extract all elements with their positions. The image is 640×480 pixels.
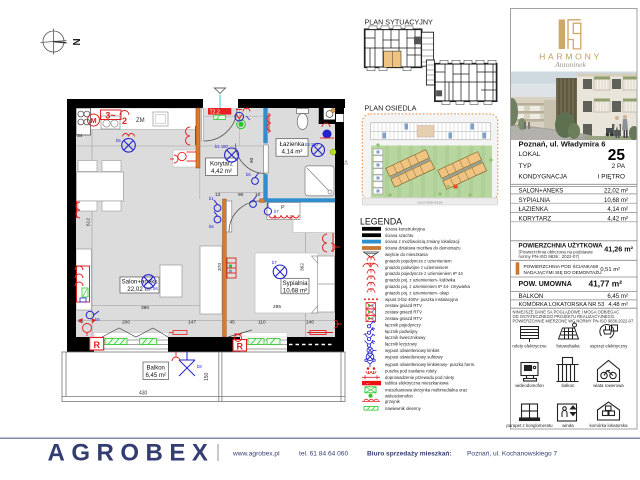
svg-text:10,68 m²: 10,68 m² (283, 287, 307, 294)
svg-text:140: 140 (306, 320, 314, 326)
svg-text:6,45 m²: 6,45 m² (607, 293, 628, 300)
svg-text:22,02 m²: 22,02 m² (127, 286, 151, 293)
svg-text:LEGENDA: LEGENDA (360, 217, 402, 227)
svg-text:90: 90 (238, 192, 244, 198)
svg-text:147: 147 (188, 320, 196, 326)
svg-text:R: R (236, 342, 243, 352)
svg-text:ściana działowa możliwa do dem: ściana działowa możliwa do demontażu (385, 246, 461, 251)
svg-text:wideodomofon: wideodomofon (385, 393, 414, 398)
svg-text:34: 34 (77, 133, 83, 139)
svg-text:gniazdo pojedyncze z uziemieni: gniazdo pojedyncze z uziemieniem (385, 258, 452, 263)
svg-text:Sypialnia: Sypialnia (282, 280, 308, 287)
svg-text:45: 45 (230, 320, 236, 326)
svg-text:b7: b7 (274, 209, 279, 214)
svg-text:tel. 61 84 64 060: tel. 61 84 64 060 (299, 451, 348, 458)
svg-text:4,48 m²: 4,48 m² (608, 302, 628, 308)
svg-text:POWIERZCHNIA POD ŚCIANKAMI: POWIERZCHNIA POD ŚCIANKAMI (524, 262, 599, 269)
svg-text:gniazdo poj. z uziemieniem- ok: gniazdo poj. z uziemieniem- okap (385, 290, 449, 295)
svg-text:KONDYGNACJA: KONDYGNACJA (519, 173, 568, 180)
svg-text:LOKAL: LOKAL (519, 151, 541, 158)
svg-text:mieszkaniowa skrzynka multimed: mieszkaniowa skrzynka multimedialna oraz (385, 387, 467, 392)
svg-text:ściana z możliwością zmiany lo: ściana z możliwością zmiany lokalizacji (385, 239, 460, 244)
svg-text:2: 2 (122, 116, 127, 126)
svg-text:2 PA: 2 PA (612, 163, 626, 170)
svg-text:AGROBEX: AGROBEX (48, 440, 215, 467)
svg-text:łącznik pojedynczy: łącznik pojedynczy (385, 322, 422, 327)
svg-text:wideodomofon: wideodomofon (515, 383, 544, 388)
svg-text:balkon: balkon (562, 383, 575, 388)
svg-text:41,26 m²: 41,26 m² (604, 245, 633, 254)
svg-text:b6: b6 (95, 317, 100, 322)
svg-text:25: 25 (608, 147, 626, 164)
svg-text:b6: b6 (209, 224, 214, 229)
svg-text:4,14 m²: 4,14 m² (282, 149, 303, 156)
svg-text:370: 370 (217, 263, 223, 271)
svg-text:3~: 3~ (105, 111, 115, 121)
svg-text:KOMÓRKA LOKATORSKA NR 53: KOMÓRKA LOKATORSKA NR 53 (519, 301, 605, 308)
svg-text:13: 13 (215, 192, 221, 198)
svg-text:łącznik podwójny: łącznik podwójny (385, 329, 418, 334)
svg-text:b1: b1 (209, 196, 214, 201)
svg-text:Antoninek: Antoninek (554, 60, 586, 69)
svg-text:N: N (70, 38, 81, 45)
svg-text:doprowadzenie przewodu pod rol: doprowadzenie przewodu pod rolety (385, 375, 455, 380)
svg-text:parapet z konglomeratu: parapet z konglomeratu (506, 423, 553, 428)
svg-text:tablica elektryczna mieszkanio: tablica elektryczna mieszkaniowa (385, 381, 449, 386)
svg-text:200: 200 (122, 320, 130, 326)
svg-text:łącznik krzyżowy: łącznik krzyżowy (385, 342, 418, 347)
svg-text:430: 430 (139, 391, 148, 397)
svg-text:POWIERZCHNIA UŻYTKOWA: POWIERZCHNIA UŻYTKOWA (519, 242, 604, 249)
svg-text:puszka pod zasilanie rolety: puszka pod zasilanie rolety (385, 369, 437, 374)
svg-text:wypust oświetleniowy kinkiet: wypust oświetleniowy kinkiet (385, 348, 440, 353)
svg-text:612: 612 (86, 218, 92, 226)
svg-text:b8: b8 (197, 364, 202, 369)
svg-text:PLAN OSIEDLA: PLAN OSIEDLA (365, 104, 417, 113)
svg-text:R: R (93, 340, 100, 350)
svg-text:110: 110 (258, 320, 266, 326)
svg-text:grzejnik: grzejnik (385, 399, 401, 404)
svg-text:M: M (90, 116, 96, 125)
svg-text:b6: b6 (246, 172, 251, 177)
svg-text:b6: b6 (153, 286, 158, 291)
svg-text:0,51 m²: 0,51 m² (600, 267, 620, 273)
svg-text:wypust oświetleniowy kinkietow: wypust oświetleniowy kinkietowy- puszka … (385, 362, 476, 367)
svg-text:ULICA NOWA WILDA: ULICA NOWA WILDA (418, 200, 443, 204)
svg-text:6,45 m²: 6,45 m² (146, 373, 166, 379)
svg-text:b7: b7 (272, 260, 277, 265)
svg-text:b1 180: b1 180 (215, 144, 228, 149)
svg-text:gniazdo poj. z uziemieniem- lo: gniazdo poj. z uziemieniem- lodówka (385, 278, 456, 283)
svg-text:295: 295 (273, 304, 281, 310)
svg-text:390: 390 (141, 305, 149, 311)
svg-text:4,42 m²: 4,42 m² (211, 168, 232, 175)
svg-text:TYP: TYP (519, 163, 533, 170)
svg-text:zestaw gniazd RTV: zestaw gniazd RTV (385, 303, 422, 308)
svg-text:wejście do mieszkania: wejście do mieszkania (385, 252, 428, 257)
svg-text:POW. UMOWNA: POW. UMOWNA (519, 281, 572, 288)
svg-text:www.agrobex.pl: www.agrobex.pl (232, 451, 280, 458)
svg-text:PLAN SYTUACYJNY: PLAN SYTUACYJNY (365, 18, 434, 27)
svg-text:wiata rowerowa: wiata rowerowa (593, 383, 624, 388)
svg-text:wpust 3-faz 400V- puszka insta: wpust 3-faz 400V- puszka instalacyjna (385, 297, 458, 302)
svg-text:gniazdo poj. z uziemieniem IP: gniazdo poj. z uziemieniem IP 44- zmywar… (385, 284, 471, 289)
svg-text:BALKON: BALKON (519, 293, 544, 300)
svg-text:ZM: ZM (136, 118, 145, 124)
svg-text:łącznik świecznikowy: łącznik świecznikowy (385, 335, 426, 340)
svg-text:Łazienka: Łazienka (280, 141, 305, 148)
svg-text:150: 150 (204, 372, 210, 381)
svg-text:T2.2: T2.2 (210, 109, 220, 115)
svg-text:normy PN-ISO 9836 : 2022-07): normy PN-ISO 9836 : 2022-07) (519, 254, 580, 259)
svg-text:gniazdo pojedyncze z uziemieni: gniazdo pojedyncze z uziemieniem IP 44 (385, 271, 463, 276)
svg-text:b3 180: b3 180 (305, 142, 318, 147)
svg-text:b5: b5 (116, 138, 121, 143)
svg-text:Poznań, ul. Władymira 6: Poznań, ul. Władymira 6 (519, 139, 606, 148)
svg-text:P: P (281, 205, 285, 211)
svg-text:ściana szachtu: ściana szachtu (385, 233, 414, 238)
svg-text:wypust oświetleniowy sufitowy: wypust oświetleniowy sufitowy (385, 354, 444, 359)
svg-text:winda: winda (562, 423, 574, 428)
svg-text:90: 90 (249, 157, 255, 163)
svg-text:Biuro sprzedaży mieszkań:: Biuro sprzedaży mieszkań: (367, 451, 452, 458)
svg-text:fotowoltaika: fotowoltaika (556, 344, 580, 349)
svg-text:komórka lokatorska: komórka lokatorska (589, 423, 628, 428)
svg-text:41,77 m²: 41,77 m² (588, 279, 622, 289)
svg-text:osprzęt elektryczny: osprzęt elektryczny (590, 344, 628, 349)
svg-text:ściana konstrukcyjna: ściana konstrukcyjna (385, 226, 425, 231)
svg-text:zestaw gniazd RTV: zestaw gniazd RTV (385, 310, 422, 315)
svg-text:rolety elektryczne: rolety elektryczne (512, 344, 547, 349)
svg-text:362: 362 (300, 263, 306, 271)
svg-text:zestaw gniazd RTV: zestaw gniazd RTV (385, 316, 422, 321)
svg-text:POWIERZCHNIE MIERZONE WG NORMY: POWIERZCHNIE MIERZONE WG NORMY PN-ISO 98… (513, 318, 635, 323)
svg-text:Balkon: Balkon (147, 366, 165, 372)
svg-text:nawiewnik okienny: nawiewnik okienny (385, 406, 422, 411)
svg-text:Poznań, ul. Kochanowskiego 7: Poznań, ul. Kochanowskiego 7 (467, 451, 558, 458)
svg-text:NADAJĄCYMI SIĘ DO DEMONTAŻU: NADAJĄCYMI SIĘ DO DEMONTAŻU (524, 269, 603, 275)
svg-text:-+-: -+- (366, 381, 370, 385)
svg-text:gniazdo podwójne z uziemieniem: gniazdo podwójne z uziemieniem (385, 265, 449, 270)
svg-text:24: 24 (344, 160, 349, 165)
svg-text:I PIĘTRO: I PIĘTRO (598, 173, 625, 180)
